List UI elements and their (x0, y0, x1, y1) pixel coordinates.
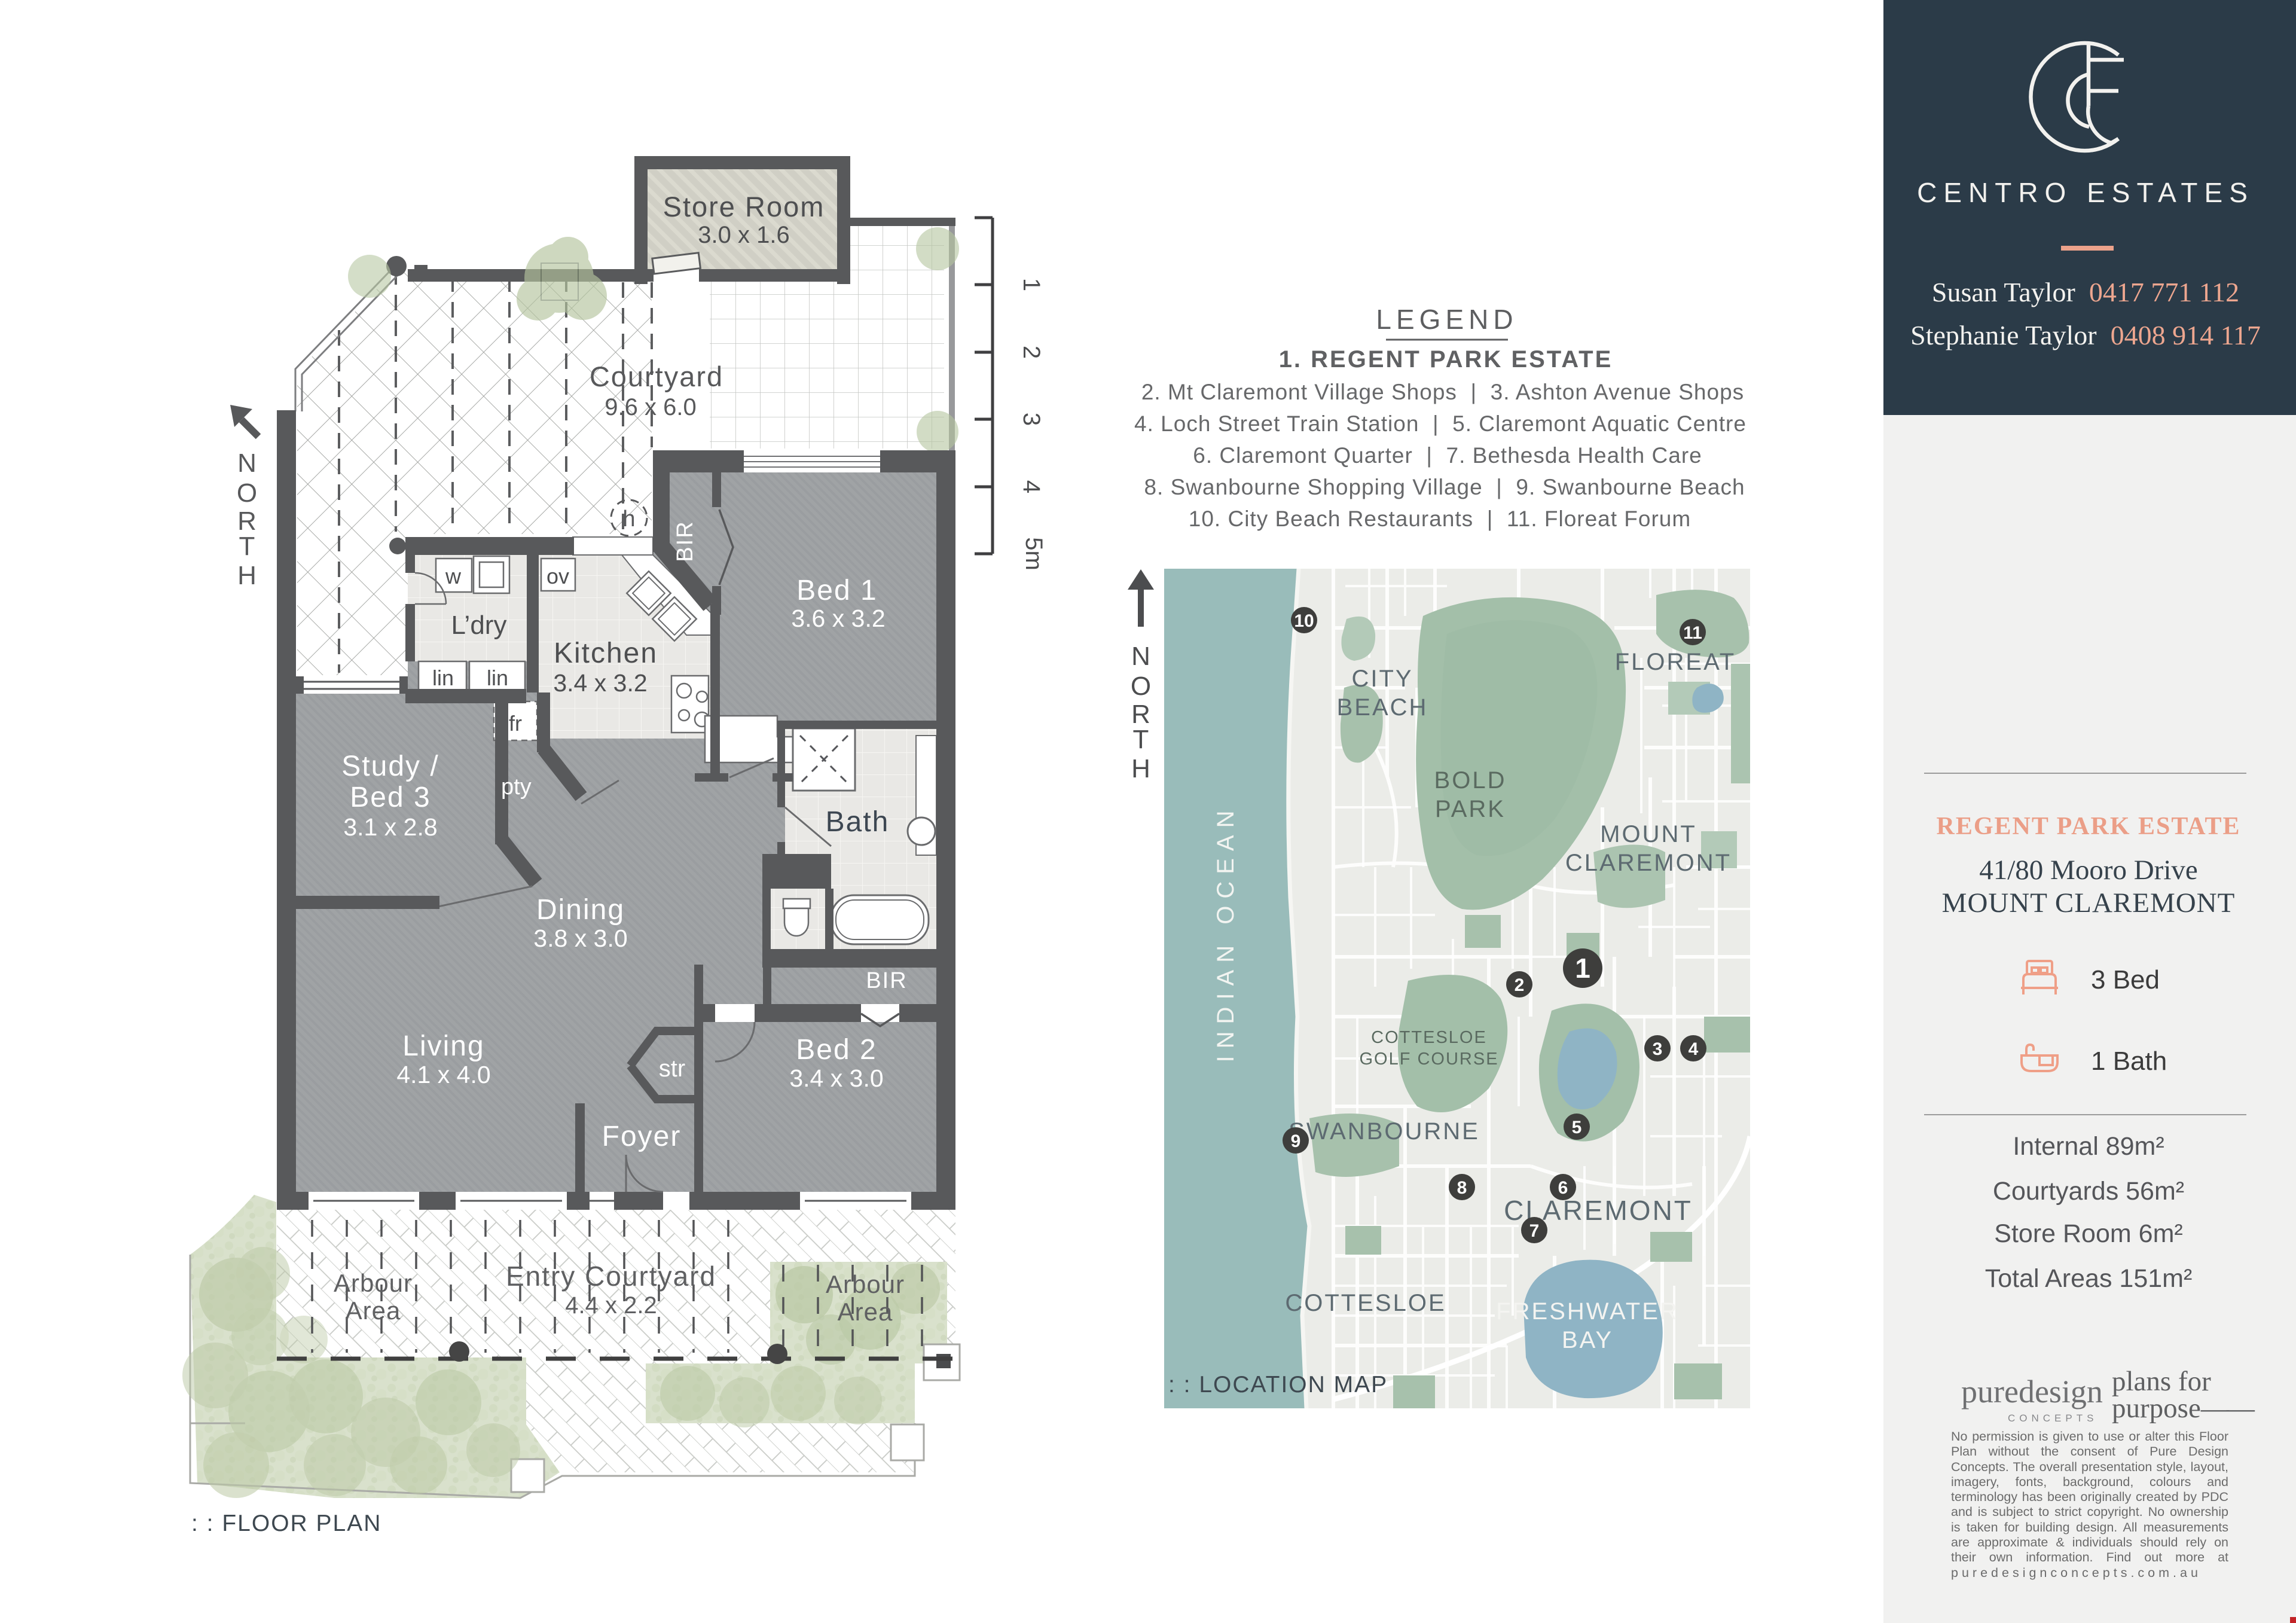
svg-text:O: O (1131, 672, 1151, 701)
svg-text:PARK: PARK (1435, 796, 1506, 822)
svg-text:COTTESLOE: COTTESLOE (1371, 1028, 1487, 1047)
svg-text:COTTESLOE: COTTESLOE (1285, 1290, 1446, 1316)
svg-text:Area: Area (838, 1298, 893, 1326)
svg-text:O: O (237, 478, 257, 508)
svg-text:Entry Courtyard: Entry Courtyard (506, 1261, 716, 1292)
svg-text:L’dry: L’dry (451, 611, 507, 640)
svg-text:Bed 1: Bed 1 (796, 575, 877, 606)
svg-text:11: 11 (1683, 623, 1702, 643)
svg-text:Living: Living (402, 1030, 484, 1062)
svg-text:3.0 x 1.6: 3.0 x 1.6 (698, 222, 789, 248)
svg-text:INDIAN OCEAN: INDIAN OCEAN (1213, 804, 1239, 1063)
svg-text:CITY: CITY (1351, 666, 1413, 692)
svg-text:w: w (445, 564, 462, 588)
svg-text:BOLD: BOLD (1434, 767, 1507, 794)
svg-text:2: 2 (1515, 975, 1525, 995)
svg-text:1: 1 (1575, 953, 1590, 984)
svg-text:Kitchen: Kitchen (554, 637, 658, 669)
svg-text:Bed 3: Bed 3 (350, 782, 430, 813)
svg-text:3: 3 (1653, 1039, 1663, 1059)
svg-text:2. Mt Claremont Village Shops: 2. Mt Claremont Village Shops | 3. Ashto… (1141, 380, 1744, 404)
svg-text:Dining: Dining (536, 894, 625, 926)
svg-text:FLOREAT: FLOREAT (1615, 649, 1736, 675)
svg-text:MOUNT: MOUNT (1600, 821, 1697, 847)
svg-text:6. Claremont Quarter | 7. Be: 6. Claremont Quarter | 7. Bethesda Healt… (1193, 443, 1702, 468)
svg-text:Courtyard: Courtyard (590, 361, 723, 392)
svg-text:: : LOCATION MAP: : : LOCATION MAP (1168, 1372, 1388, 1398)
svg-text:str: str (659, 1055, 685, 1082)
svg-text:5m: 5m (1021, 537, 1047, 571)
svg-text:lin: lin (432, 666, 454, 690)
svg-text:H: H (1131, 754, 1150, 783)
svg-text:3.1 x 2.8: 3.1 x 2.8 (343, 813, 437, 841)
svg-text:Area: Area (346, 1296, 401, 1325)
svg-text:6: 6 (1558, 1178, 1568, 1198)
svg-text:T: T (1133, 725, 1149, 754)
svg-text:T: T (239, 532, 255, 561)
svg-text:BEACH: BEACH (1337, 694, 1428, 721)
svg-text:5: 5 (1572, 1118, 1582, 1137)
svg-text:BIR: BIR (866, 968, 907, 993)
svg-text:4. Loch Street Train Station: 4. Loch Street Train Station | 5. Clarem… (1134, 411, 1747, 436)
svg-text:fr: fr (509, 711, 522, 736)
svg-text:Arbour: Arbour (826, 1270, 905, 1298)
svg-text:3: 3 (1018, 413, 1045, 426)
svg-text:pty: pty (501, 774, 532, 800)
svg-text:3.6 x 3.2: 3.6 x 3.2 (791, 605, 885, 632)
svg-text:Bath: Bath (826, 806, 890, 838)
svg-text:H: H (237, 561, 257, 590)
svg-text:Bed 2: Bed 2 (796, 1034, 877, 1066)
svg-text:10. City Beach Restaurants |: 10. City Beach Restaurants | 11. Floreat… (1189, 507, 1691, 531)
svg-text:ov: ov (546, 564, 569, 588)
svg-text:: : FLOOR PLAN: : : FLOOR PLAN (191, 1511, 381, 1536)
svg-text:7: 7 (1529, 1221, 1540, 1241)
svg-text:9: 9 (1291, 1131, 1301, 1151)
svg-text:h: h (622, 507, 635, 532)
svg-text:Study /: Study / (341, 751, 439, 782)
svg-text:N: N (1131, 642, 1150, 671)
svg-text:8. Swanbourne Shopping Village: 8. Swanbourne Shopping Village | 9. Swan… (1144, 475, 1745, 499)
svg-text:1. REGENT PARK ESTATE: 1. REGENT PARK ESTATE (1279, 346, 1613, 373)
svg-text:SWANBOURNE: SWANBOURNE (1289, 1118, 1480, 1145)
svg-text:8: 8 (1457, 1178, 1467, 1198)
svg-text:LEGEND: LEGEND (1376, 304, 1518, 335)
svg-text:10: 10 (1294, 611, 1314, 631)
svg-text:3.8 x 3.0: 3.8 x 3.0 (533, 925, 627, 952)
svg-text:4.1 x 4.0: 4.1 x 4.0 (396, 1061, 490, 1088)
svg-text:lin: lin (487, 666, 508, 690)
svg-text:4: 4 (1689, 1039, 1699, 1059)
svg-text:GOLF COURSE: GOLF COURSE (1359, 1050, 1498, 1069)
svg-text:4: 4 (1018, 480, 1045, 493)
svg-text:1: 1 (1018, 278, 1045, 291)
svg-text:FRESHWATER: FRESHWATER (1496, 1298, 1679, 1325)
svg-text:Store Room: Store Room (663, 191, 825, 222)
svg-text:2: 2 (1018, 346, 1045, 359)
svg-text:N: N (237, 449, 257, 478)
svg-text:3.4 x 3.2: 3.4 x 3.2 (553, 669, 647, 697)
svg-text:BAY: BAY (1562, 1327, 1613, 1353)
svg-text:Arbour: Arbour (334, 1269, 413, 1297)
svg-text:BIR: BIR (673, 520, 698, 562)
svg-text:4.4 x 2.2: 4.4 x 2.2 (565, 1292, 657, 1319)
svg-text:CLAREMONT: CLAREMONT (1565, 850, 1732, 876)
svg-text:9.6 x 6.0: 9.6 x 6.0 (604, 394, 696, 420)
svg-text:Foyer: Foyer (602, 1121, 682, 1152)
svg-text:3.4 x 3.0: 3.4 x 3.0 (789, 1064, 883, 1092)
